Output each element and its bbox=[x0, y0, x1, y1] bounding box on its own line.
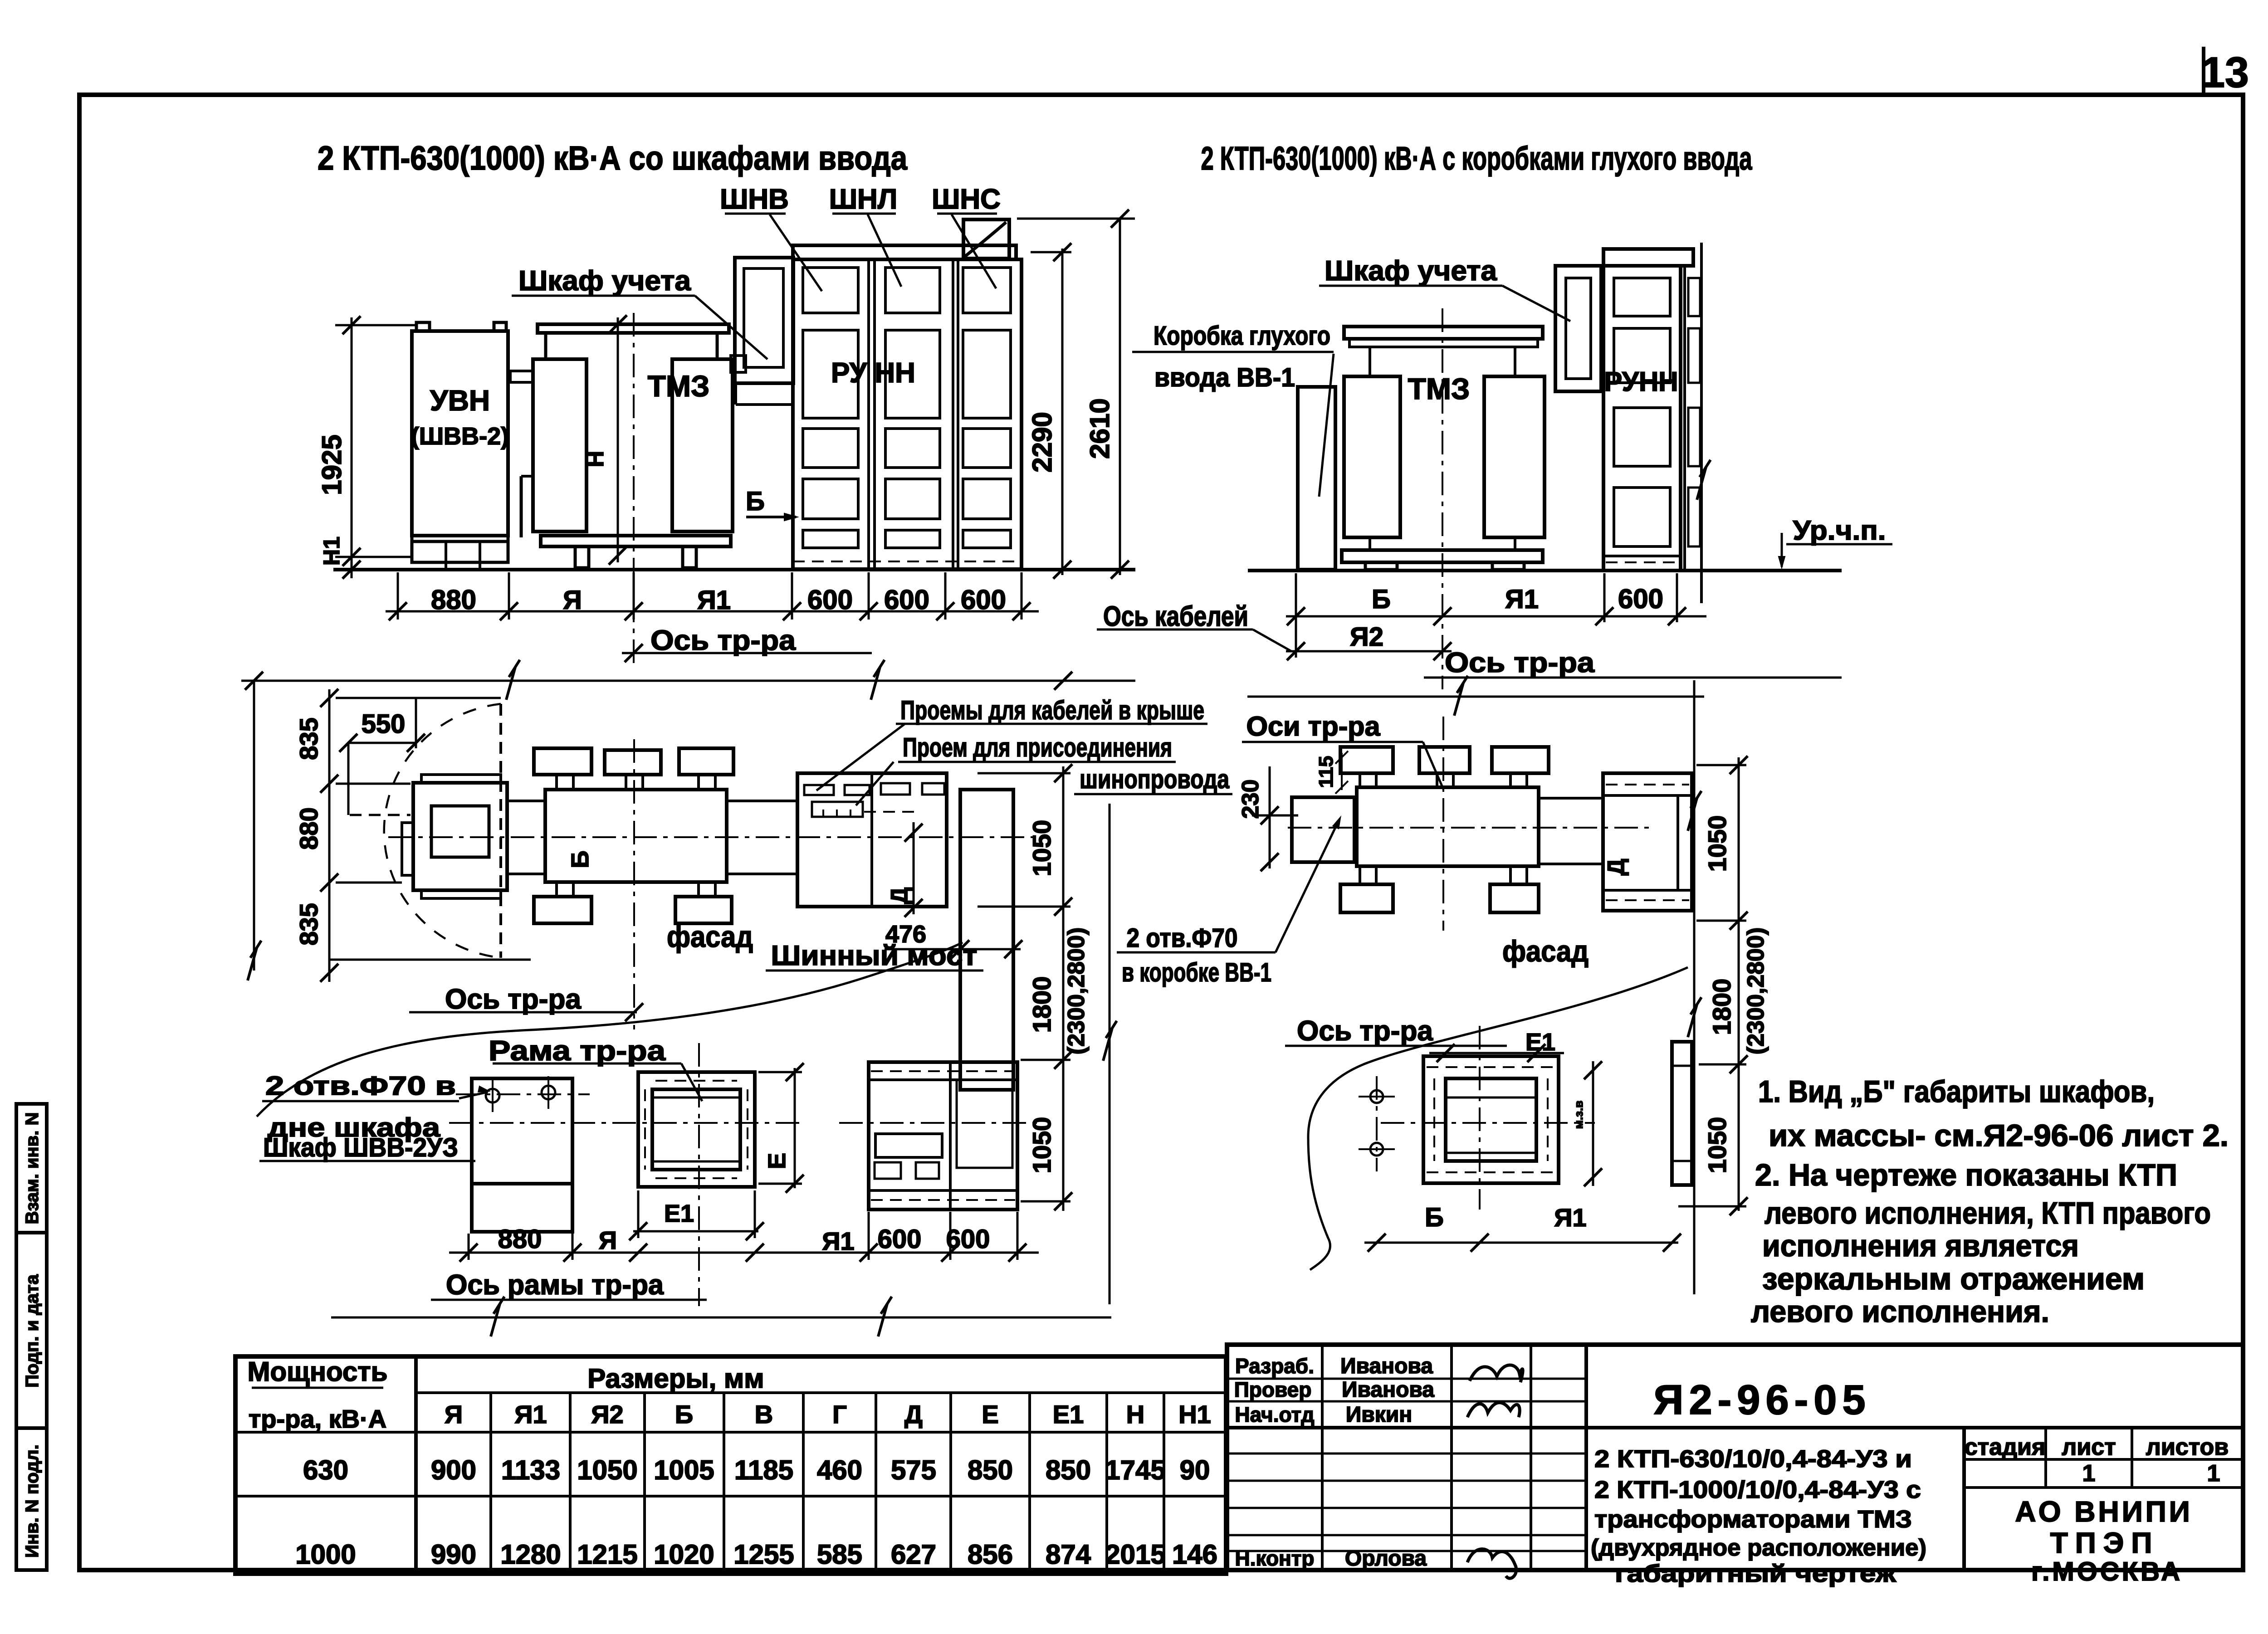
svg-text:1: 1 bbox=[2207, 1460, 2220, 1487]
svg-text:Н1: Н1 bbox=[319, 537, 344, 566]
svg-text:левого исполнения, КТП правого: левого исполнения, КТП правого bbox=[1765, 1196, 2211, 1230]
svg-text:ШНС: ШНС bbox=[932, 184, 1001, 215]
svg-text:Я: Я bbox=[445, 1400, 463, 1429]
svg-text:1: 1 bbox=[2082, 1460, 2096, 1487]
svg-text:Н.контр: Н.контр bbox=[1235, 1546, 1315, 1570]
svg-text:стадия: стадия bbox=[1965, 1434, 2046, 1460]
svg-text:600: 600 bbox=[884, 585, 929, 615]
svg-text:фасад: фасад bbox=[667, 920, 753, 953]
svg-text:г.МОСКВА: г.МОСКВА bbox=[2031, 1557, 2183, 1586]
svg-text:АО ВНИПИ: АО ВНИПИ bbox=[2015, 1495, 2192, 1528]
svg-text:габаритный чертеж: габаритный чертеж bbox=[1615, 1560, 1897, 1587]
svg-text:Мощность: Мощность bbox=[248, 1356, 388, 1387]
svg-text:(2300,2800): (2300,2800) bbox=[1743, 927, 1769, 1054]
svg-text:Оси тр-ра: Оси тр-ра bbox=[1246, 711, 1381, 741]
svg-text:Е1: Е1 bbox=[1525, 1029, 1555, 1056]
svg-text:ТМЗ: ТМЗ bbox=[1408, 372, 1470, 405]
svg-text:1050: 1050 bbox=[1027, 820, 1056, 877]
svg-text:шинопровода: шинопровода bbox=[1080, 765, 1230, 794]
svg-text:600: 600 bbox=[1618, 584, 1663, 614]
svg-text:Иванова: Иванова bbox=[1342, 1378, 1434, 1402]
svg-text:Рама тр-ра: Рама тр-ра bbox=[489, 1035, 666, 1067]
svg-text:575: 575 bbox=[891, 1455, 936, 1485]
svg-text:Провер: Провер bbox=[1234, 1378, 1312, 1401]
svg-text:600: 600 bbox=[946, 1224, 990, 1254]
svg-text:550: 550 bbox=[362, 709, 406, 739]
svg-text:Иванова: Иванова bbox=[1340, 1354, 1433, 1378]
svg-text:Я1: Я1 bbox=[514, 1400, 547, 1429]
svg-text:их массы- см.Я2-96-06 лист 2.: их массы- см.Я2-96-06 лист 2. bbox=[1769, 1118, 2229, 1153]
svg-text:1050: 1050 bbox=[1703, 1117, 1731, 1174]
svg-text:600: 600 bbox=[807, 585, 853, 615]
svg-text:Б: Б bbox=[675, 1400, 693, 1429]
svg-text:627: 627 bbox=[891, 1539, 936, 1570]
svg-text:2 КТП-630/10/0,4-84-У3 и: 2 КТП-630/10/0,4-84-У3 и bbox=[1594, 1445, 1912, 1473]
svg-text:Е1: Е1 bbox=[1053, 1400, 1084, 1429]
svg-text:1255: 1255 bbox=[733, 1539, 794, 1570]
svg-text:900: 900 bbox=[431, 1455, 476, 1485]
svg-text:Е: Е bbox=[982, 1400, 998, 1429]
svg-text:Е: Е bbox=[763, 1153, 791, 1169]
svg-text:Инв. N подл.: Инв. N подл. bbox=[22, 1444, 42, 1558]
svg-text:1133: 1133 bbox=[501, 1455, 560, 1485]
svg-text:Д: Д bbox=[1603, 858, 1629, 875]
svg-text:Е1: Е1 bbox=[664, 1200, 694, 1227]
svg-text:Н1: Н1 bbox=[1178, 1400, 1211, 1429]
svg-text:Я: Я bbox=[563, 585, 582, 615]
svg-text:Ур.ч.п.: Ур.ч.п. bbox=[1793, 515, 1886, 546]
svg-text:Ось тр-ра: Ось тр-ра bbox=[1297, 1015, 1433, 1047]
svg-text:230: 230 bbox=[1237, 780, 1264, 819]
svg-text:Проем для присоединения: Проем для присоединения bbox=[903, 733, 1172, 762]
svg-text:зеркальным отражением: зеркальным отражением bbox=[1762, 1262, 2145, 1296]
svg-text:ТПЭП: ТПЭП bbox=[2050, 1527, 2160, 1559]
svg-text:476: 476 bbox=[885, 921, 926, 948]
svg-text:м.з.в: м.з.в bbox=[1572, 1101, 1585, 1129]
svg-text:850: 850 bbox=[968, 1455, 1013, 1485]
svg-text:(2300,2800): (2300,2800) bbox=[1063, 927, 1090, 1054]
svg-text:2. На чертеже показаны КТП: 2. На чертеже показаны КТП bbox=[1755, 1158, 2177, 1192]
svg-text:630: 630 bbox=[303, 1455, 348, 1485]
svg-text:Размеры, мм: Размеры, мм bbox=[587, 1363, 764, 1394]
svg-text:1800: 1800 bbox=[1707, 979, 1736, 1035]
svg-text:Я1: Я1 bbox=[1505, 585, 1539, 614]
svg-text:Б: Б bbox=[1425, 1203, 1444, 1232]
svg-text:тр-ра, кВ·А: тр-ра, кВ·А bbox=[249, 1405, 386, 1433]
svg-text:1050: 1050 bbox=[1703, 815, 1731, 872]
svg-text:Шкаф учета: Шкаф учета bbox=[518, 265, 691, 297]
svg-text:2 КТП-630(1000) кВ·А с коробка: 2 КТП-630(1000) кВ·А с коробками глухого… bbox=[1201, 141, 1753, 177]
svg-text:Взам. инв. N: Взам. инв. N bbox=[22, 1112, 42, 1224]
svg-text:2015: 2015 bbox=[1105, 1539, 1165, 1570]
svg-text:Б: Б bbox=[1372, 585, 1391, 614]
svg-text:Г: Г bbox=[832, 1400, 847, 1429]
svg-text:856: 856 bbox=[968, 1539, 1013, 1570]
svg-text:90: 90 bbox=[1180, 1455, 1210, 1485]
svg-text:880: 880 bbox=[498, 1224, 542, 1254]
svg-text:листов: листов bbox=[2146, 1434, 2229, 1460]
svg-text:990: 990 bbox=[431, 1539, 476, 1570]
svg-text:трансформаторами ТМЗ: трансформаторами ТМЗ bbox=[1594, 1506, 1912, 1533]
svg-text:ШНВ: ШНВ bbox=[720, 184, 789, 215]
svg-text:Ивкин: Ивкин bbox=[1346, 1403, 1413, 1427]
svg-text:600: 600 bbox=[961, 585, 1006, 615]
svg-text:УВН: УВН bbox=[430, 384, 490, 417]
svg-text:ШНЛ: ШНЛ bbox=[829, 184, 898, 215]
svg-text:Шинный мост: Шинный мост bbox=[771, 940, 978, 971]
svg-text:Шкаф ШВВ-2УЗ: Шкаф ШВВ-2УЗ bbox=[263, 1133, 458, 1162]
svg-text:Я2-96-05: Я2-96-05 bbox=[1653, 1377, 1871, 1423]
svg-text:1185: 1185 bbox=[734, 1455, 793, 1485]
svg-text:Д: Д bbox=[886, 887, 913, 904]
svg-text:874: 874 bbox=[1046, 1539, 1091, 1570]
svg-text:1215: 1215 bbox=[577, 1539, 637, 1570]
svg-text:850: 850 bbox=[1046, 1455, 1091, 1485]
svg-text:исполнения является: исполнения является bbox=[1762, 1229, 2079, 1263]
svg-text:Н: Н bbox=[583, 451, 608, 467]
svg-text:левого исполнения.: левого исполнения. bbox=[1751, 1294, 2049, 1329]
svg-text:РУНН: РУНН bbox=[1604, 366, 1678, 397]
svg-text:115: 115 bbox=[1315, 756, 1337, 788]
svg-text:460: 460 bbox=[817, 1455, 862, 1485]
svg-text:(двухрядное расположение): (двухрядное расположение) bbox=[1591, 1535, 1926, 1561]
svg-text:Ось рамы тр-ра: Ось рамы тр-ра bbox=[446, 1269, 664, 1301]
svg-text:Проемы для кабелей в крыше: Проемы для кабелей в крыше bbox=[900, 696, 1204, 725]
svg-text:Б: Б bbox=[746, 487, 765, 516]
svg-text:2610: 2610 bbox=[1085, 398, 1115, 458]
svg-text:1745: 1745 bbox=[1105, 1455, 1165, 1485]
svg-text:Нач.отд: Нач.отд bbox=[1235, 1403, 1314, 1426]
svg-text:2 отв.Ф70: 2 отв.Ф70 bbox=[1127, 923, 1238, 953]
svg-text:Я: Я bbox=[599, 1226, 617, 1254]
svg-text:1. Вид „Б" габариты шкафов,: 1. Вид „Б" габариты шкафов, bbox=[1758, 1074, 2155, 1109]
svg-text:(ШВВ-2): (ШВВ-2) bbox=[411, 423, 509, 450]
svg-text:Я1: Я1 bbox=[822, 1227, 854, 1255]
svg-text:2 КТП-630(1000) кВ·А со шкафам: 2 КТП-630(1000) кВ·А со шкафами ввода bbox=[318, 139, 908, 177]
svg-text:2290: 2290 bbox=[1027, 412, 1057, 472]
svg-text:880: 880 bbox=[431, 585, 476, 615]
svg-text:Ось тр-ра: Ось тр-ра bbox=[650, 625, 796, 656]
svg-text:1050: 1050 bbox=[577, 1455, 637, 1485]
svg-text:600: 600 bbox=[878, 1224, 922, 1254]
svg-text:лист: лист bbox=[2062, 1434, 2116, 1460]
svg-text:Коробка глухого: Коробка глухого bbox=[1154, 321, 1330, 351]
svg-text:1050: 1050 bbox=[1027, 1117, 1056, 1174]
svg-text:Я1: Я1 bbox=[1554, 1203, 1586, 1232]
svg-text:Орлова: Орлова bbox=[1345, 1546, 1427, 1571]
svg-text:фасад: фасад bbox=[1502, 934, 1589, 968]
svg-text:в коробке ВВ-1: в коробке ВВ-1 bbox=[1122, 958, 1271, 987]
svg-text:РУ НН: РУ НН bbox=[831, 357, 915, 389]
svg-text:Ось тр-ра: Ось тр-ра bbox=[1445, 647, 1595, 678]
svg-text:880: 880 bbox=[294, 807, 323, 849]
svg-text:585: 585 bbox=[817, 1539, 862, 1570]
svg-text:Я2: Я2 bbox=[1350, 622, 1383, 652]
svg-text:13: 13 bbox=[2201, 49, 2249, 97]
svg-text:ТМЗ: ТМЗ bbox=[648, 369, 710, 403]
svg-text:Д: Д bbox=[904, 1400, 923, 1429]
svg-text:835: 835 bbox=[294, 903, 323, 945]
svg-text:1000: 1000 bbox=[295, 1539, 356, 1570]
svg-text:Н: Н bbox=[1126, 1400, 1144, 1429]
svg-text:Подп. и дата: Подп. и дата bbox=[22, 1274, 42, 1387]
svg-text:ввода ВВ-1: ввода ВВ-1 bbox=[1154, 363, 1295, 392]
svg-text:1280: 1280 bbox=[500, 1539, 561, 1570]
svg-text:1005: 1005 bbox=[654, 1455, 714, 1485]
svg-text:835: 835 bbox=[294, 717, 323, 760]
svg-text:146: 146 bbox=[1172, 1539, 1217, 1570]
svg-text:Разраб.: Разраб. bbox=[1235, 1354, 1314, 1378]
svg-text:Я2: Я2 bbox=[591, 1400, 623, 1429]
svg-text:Ось кабелей: Ось кабелей bbox=[1103, 601, 1248, 632]
svg-text:Я1: Я1 bbox=[697, 585, 731, 615]
svg-text:Шкаф учета: Шкаф учета bbox=[1325, 255, 1497, 287]
svg-text:Ось тр-ра: Ось тр-ра bbox=[445, 984, 582, 1015]
svg-text:1800: 1800 bbox=[1027, 976, 1056, 1033]
svg-text:1925: 1925 bbox=[317, 434, 347, 495]
svg-text:2 КТП-1000/10/0,4-84-У3 с: 2 КТП-1000/10/0,4-84-У3 с bbox=[1594, 1476, 1921, 1503]
svg-text:В: В bbox=[755, 1400, 773, 1429]
svg-text:1020: 1020 bbox=[654, 1539, 714, 1570]
svg-text:Б: Б bbox=[567, 851, 594, 868]
